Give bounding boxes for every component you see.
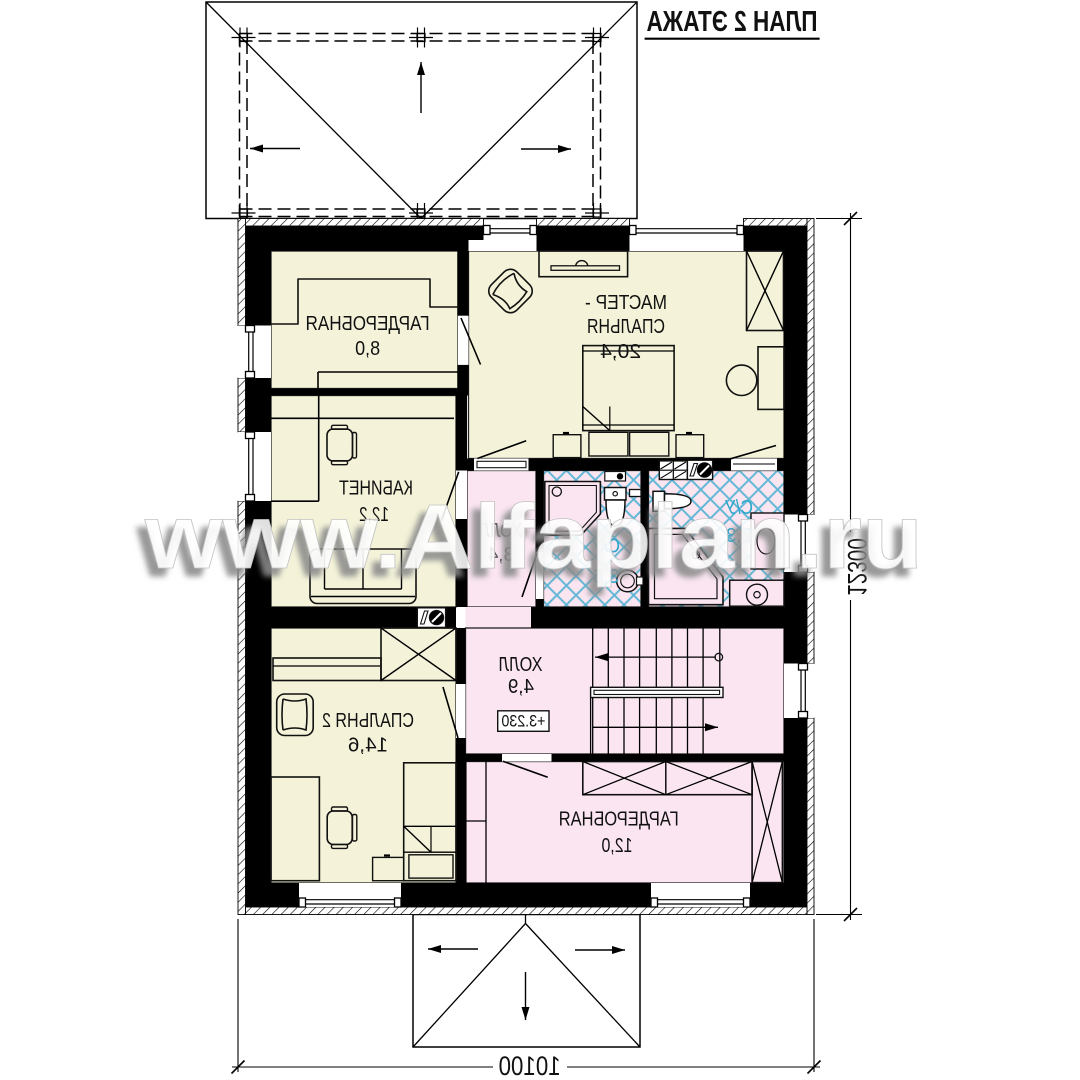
svg-text:20,4: 20,4 <box>600 340 641 363</box>
svg-text:10100: 10100 <box>499 1051 561 1080</box>
svg-text:14,6: 14,6 <box>348 734 388 757</box>
svg-text:СПАЛЬНЯ 2: СПАЛЬНЯ 2 <box>322 709 414 732</box>
svg-text:+3.230: +3.230 <box>501 712 545 731</box>
svg-text:12,0: 12,0 <box>602 834 633 857</box>
svg-text:ГАРДЕРОБНАЯ: ГАРДЕРОБНАЯ <box>559 808 679 831</box>
svg-text:ГАРДЕРОБНАЯ: ГАРДЕРОБНАЯ <box>306 312 430 335</box>
svg-text:СПАЛЬНЯ: СПАЛЬНЯ <box>587 315 665 338</box>
svg-text:8,0: 8,0 <box>355 337 380 360</box>
svg-text:ПЛАН 2 ЭТАЖА: ПЛАН 2 ЭТАЖА <box>647 6 818 38</box>
svg-text:МАСТЕР -: МАСТЕР - <box>585 291 667 314</box>
svg-text:www.Alfaplan.ru: www.Alfaplan.ru <box>144 486 923 588</box>
svg-text:ХОЛЛ: ХОЛЛ <box>499 653 543 676</box>
svg-text:4,9: 4,9 <box>508 675 534 698</box>
